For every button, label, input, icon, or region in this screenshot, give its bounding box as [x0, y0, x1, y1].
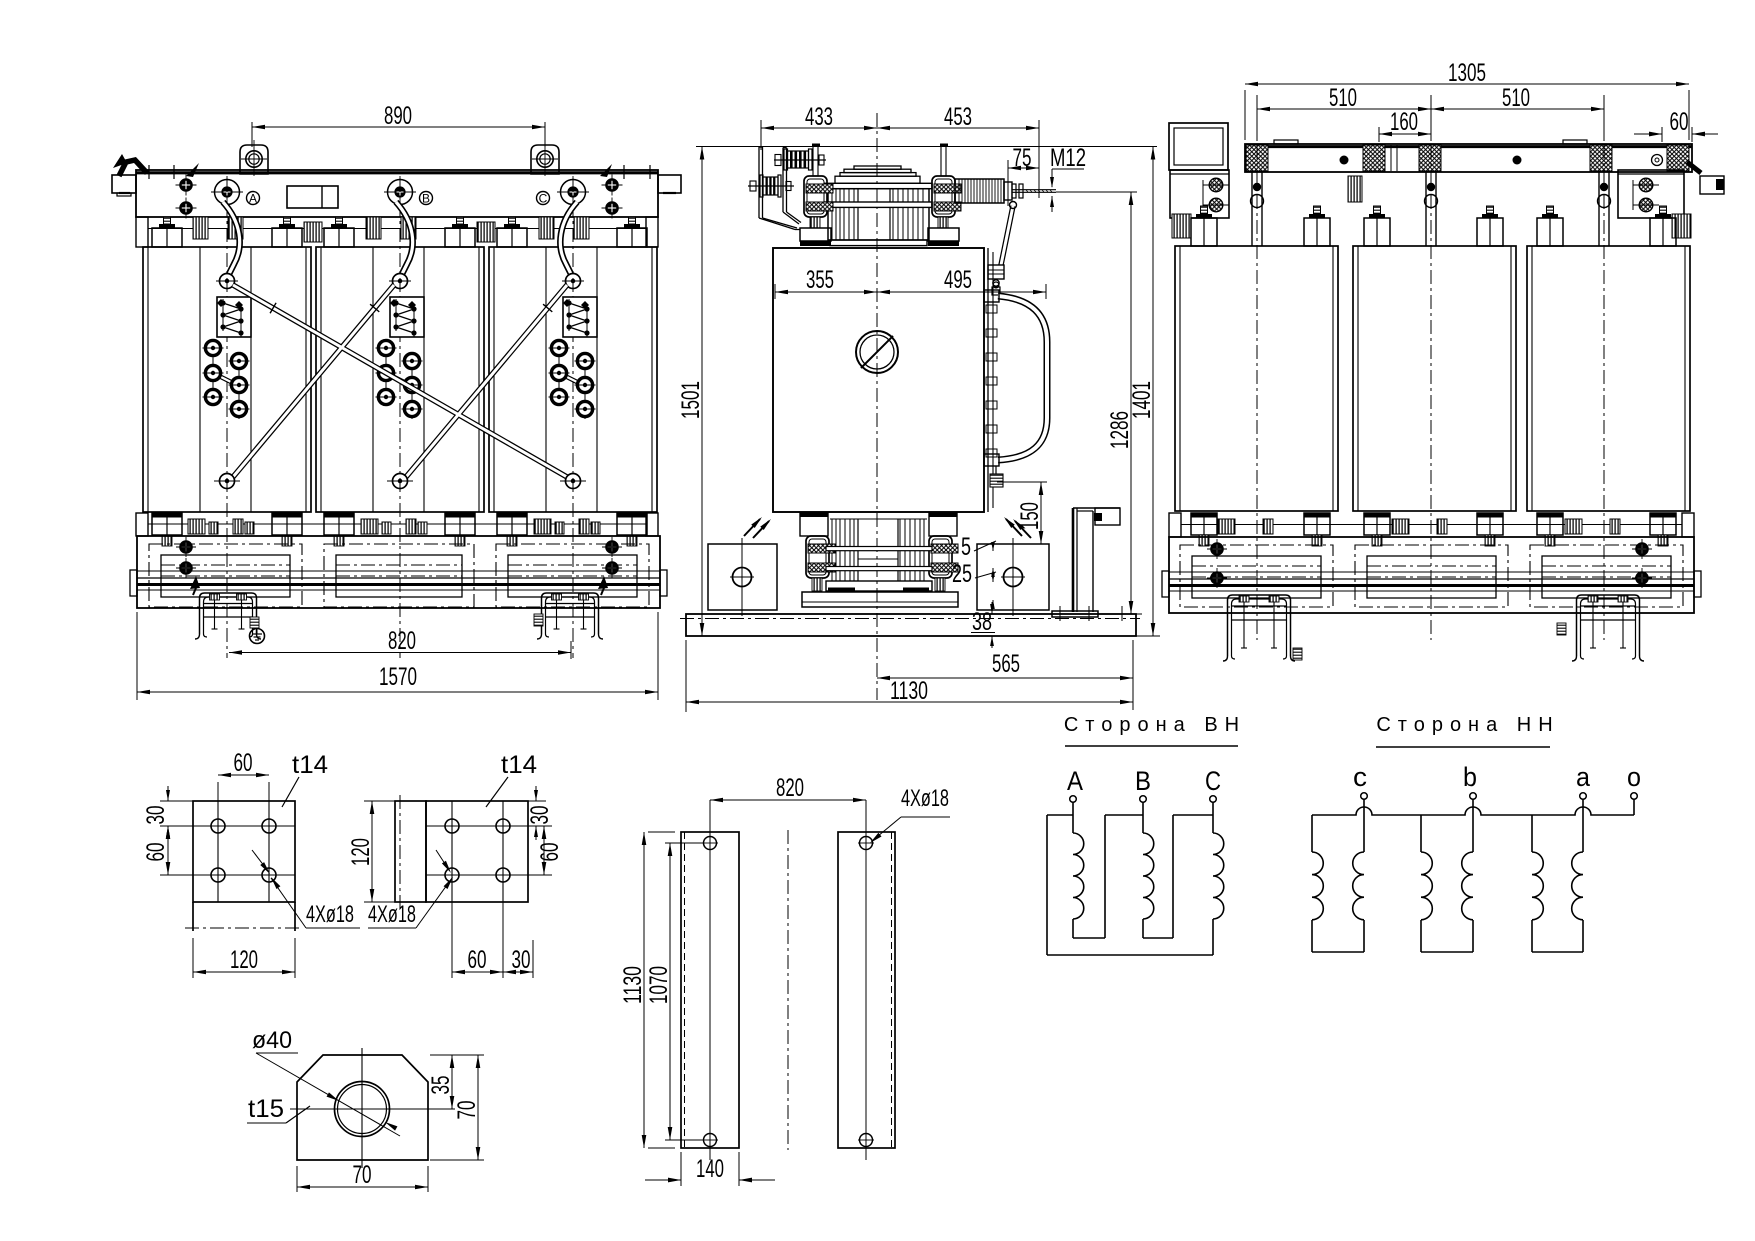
svg-text:160: 160 — [1390, 108, 1418, 136]
svg-text:c: c — [1353, 762, 1367, 792]
svg-text:70: 70 — [353, 1161, 372, 1189]
svg-text:1305: 1305 — [1448, 59, 1486, 87]
svg-text:t14: t14 — [501, 751, 537, 779]
svg-text:ø40: ø40 — [252, 1027, 292, 1054]
svg-text:1130: 1130 — [890, 677, 928, 705]
svg-text:C: C — [1205, 766, 1221, 796]
svg-text:38: 38 — [972, 608, 992, 636]
svg-text:75: 75 — [1013, 144, 1032, 172]
svg-text:60: 60 — [234, 749, 253, 777]
svg-text:1130: 1130 — [619, 966, 647, 1004]
svg-text:60: 60 — [142, 843, 170, 862]
svg-text:A: A — [1067, 766, 1083, 796]
svg-text:B: B — [1135, 766, 1151, 796]
svg-text:820: 820 — [388, 627, 416, 655]
svg-text:Сторона НН: Сторона НН — [1376, 714, 1559, 736]
svg-text:4Xø18: 4Xø18 — [901, 785, 949, 812]
svg-text:510: 510 — [1502, 84, 1530, 112]
svg-text:t15: t15 — [248, 1095, 284, 1123]
svg-text:1570: 1570 — [379, 663, 417, 691]
svg-text:60: 60 — [536, 843, 564, 862]
svg-text:A: A — [249, 192, 257, 206]
svg-text:433: 433 — [805, 103, 833, 131]
svg-text:453: 453 — [944, 103, 972, 131]
svg-text:1501: 1501 — [677, 381, 705, 419]
svg-text:1401: 1401 — [1128, 381, 1156, 419]
svg-text:5: 5 — [961, 533, 971, 561]
svg-text:30: 30 — [512, 946, 531, 974]
svg-text:35: 35 — [427, 1076, 455, 1095]
svg-text:4Xø18: 4Xø18 — [368, 901, 416, 928]
svg-text:30: 30 — [142, 806, 170, 825]
svg-text:565: 565 — [992, 650, 1020, 678]
svg-text:495: 495 — [944, 266, 972, 294]
svg-text:1070: 1070 — [645, 966, 673, 1004]
svg-text:120: 120 — [230, 946, 258, 974]
svg-text:820: 820 — [776, 774, 804, 802]
svg-text:890: 890 — [384, 102, 412, 130]
svg-text:120: 120 — [347, 838, 375, 866]
svg-text:30: 30 — [526, 806, 554, 825]
svg-text:60: 60 — [1670, 108, 1689, 136]
svg-text:60: 60 — [468, 946, 487, 974]
svg-text:510: 510 — [1329, 84, 1357, 112]
svg-text:C: C — [539, 192, 548, 206]
svg-text:a: a — [1576, 762, 1591, 792]
svg-text:140: 140 — [696, 1155, 724, 1183]
svg-text:4Xø18: 4Xø18 — [306, 901, 354, 928]
svg-text:B: B — [422, 192, 430, 206]
svg-text:t14: t14 — [292, 751, 328, 779]
svg-text:b: b — [1463, 762, 1477, 792]
svg-text:355: 355 — [806, 266, 834, 294]
svg-text:Сторона ВН: Сторона ВН — [1064, 714, 1246, 736]
svg-text:o: o — [1627, 762, 1641, 792]
svg-text:M12: M12 — [1050, 144, 1086, 172]
svg-text:150: 150 — [1016, 502, 1044, 530]
svg-text:25: 25 — [952, 560, 972, 588]
svg-text:70: 70 — [453, 1101, 481, 1120]
